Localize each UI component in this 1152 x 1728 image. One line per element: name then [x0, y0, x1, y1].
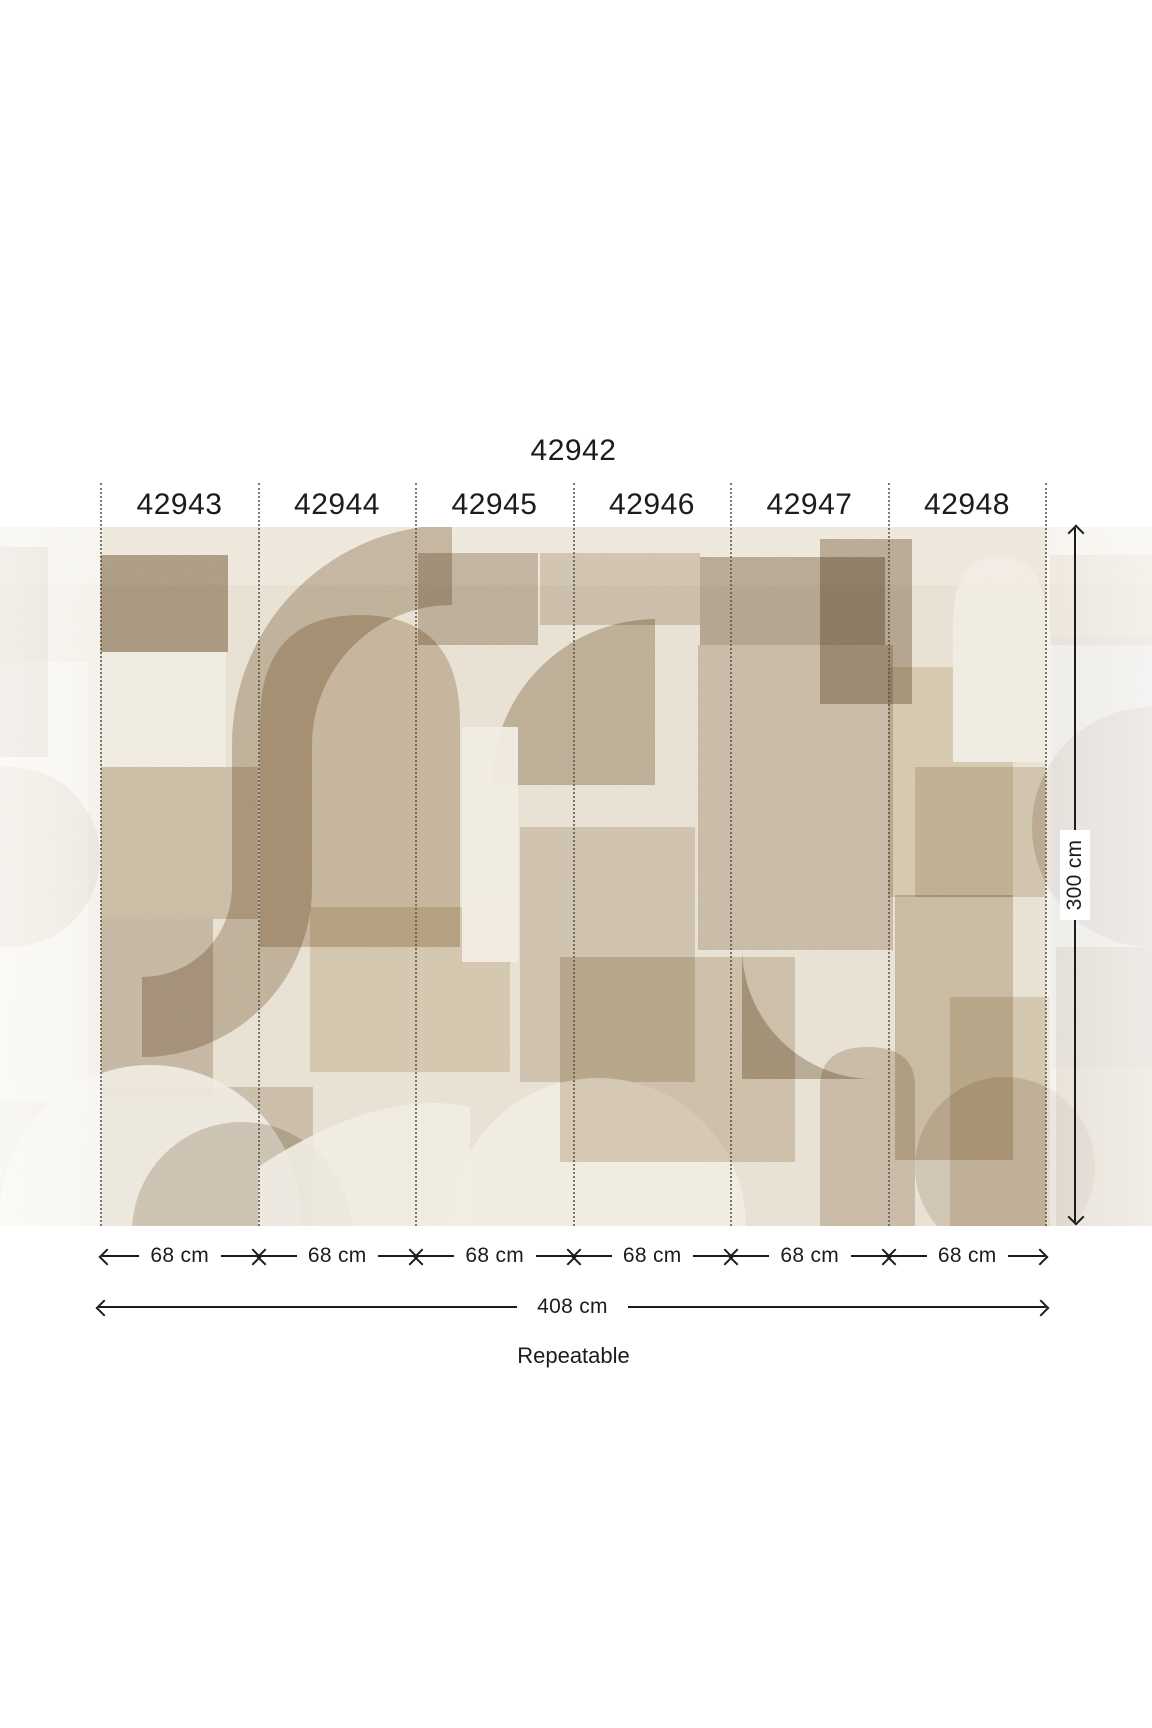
left-arrow-icon: [732, 1255, 769, 1257]
panel-code-label: 42945: [416, 487, 573, 523]
panel-width-dimension: 68 cm: [417, 1242, 573, 1270]
total-width-label: 408 cm: [537, 1293, 608, 1321]
panel-divider-line: [573, 483, 575, 1226]
panel-code-label: 42947: [731, 487, 888, 523]
right-arrow-icon: [378, 1255, 415, 1257]
height-dimension-arrow-icon: 300 cm: [1074, 528, 1076, 1222]
right-arrow-icon: [851, 1255, 888, 1257]
panel-code-label: 42946: [574, 487, 731, 523]
panel-width-label: 68 cm: [139, 1242, 221, 1270]
panel-width-dimension: 68 cm: [102, 1242, 258, 1270]
panel-divider-line: [100, 483, 102, 1226]
left-arrow-icon: [575, 1255, 612, 1257]
left-arrow-icon: [260, 1255, 297, 1257]
panel-width-label: 68 cm: [769, 1242, 851, 1270]
panel-width-label: 68 cm: [297, 1242, 379, 1270]
mural-code-label: 42942: [101, 432, 1046, 470]
panel-width-label: 68 cm: [927, 1242, 1009, 1270]
right-arrow-icon: [536, 1255, 573, 1257]
panel-code-label: 42948: [889, 487, 1046, 523]
panel-width-dimension: 68 cm: [260, 1242, 416, 1270]
panel-divider-line: [258, 483, 260, 1226]
panel-code-label: 42943: [101, 487, 258, 523]
left-arrow-icon: [102, 1255, 139, 1257]
panel-divider-line: [730, 483, 732, 1226]
panel-width-dimension: 68 cm: [732, 1242, 888, 1270]
wallpaper-mural-image: [0, 527, 1152, 1226]
left-arrow-icon: [890, 1255, 927, 1257]
panel-width-dimension: 68 cm: [890, 1242, 1046, 1270]
panel-width-label: 68 cm: [454, 1242, 536, 1270]
panel-width-label: 68 cm: [612, 1242, 694, 1270]
wallpaper-dimension-diagram: 42942 42943 42944 42945 42946 42947 4294…: [0, 0, 1152, 1728]
panel-divider-line: [888, 483, 890, 1226]
right-arrow-icon: [693, 1255, 730, 1257]
left-arrow-icon: [417, 1255, 454, 1257]
right-arrow-icon: [1008, 1255, 1045, 1257]
panel-width-dimension: 68 cm: [575, 1242, 731, 1270]
total-width-dimension: 408 cm: [99, 1293, 1046, 1321]
left-arrow-icon: [99, 1306, 517, 1308]
repeatable-label: Repeatable: [101, 1341, 1046, 1371]
panel-code-label: 42944: [259, 487, 416, 523]
panel-divider-line: [415, 483, 417, 1226]
right-arrow-icon: [628, 1306, 1046, 1308]
height-dimension-label: 300 cm: [1060, 830, 1090, 920]
right-arrow-icon: [221, 1255, 258, 1257]
panel-divider-line: [1045, 483, 1047, 1226]
